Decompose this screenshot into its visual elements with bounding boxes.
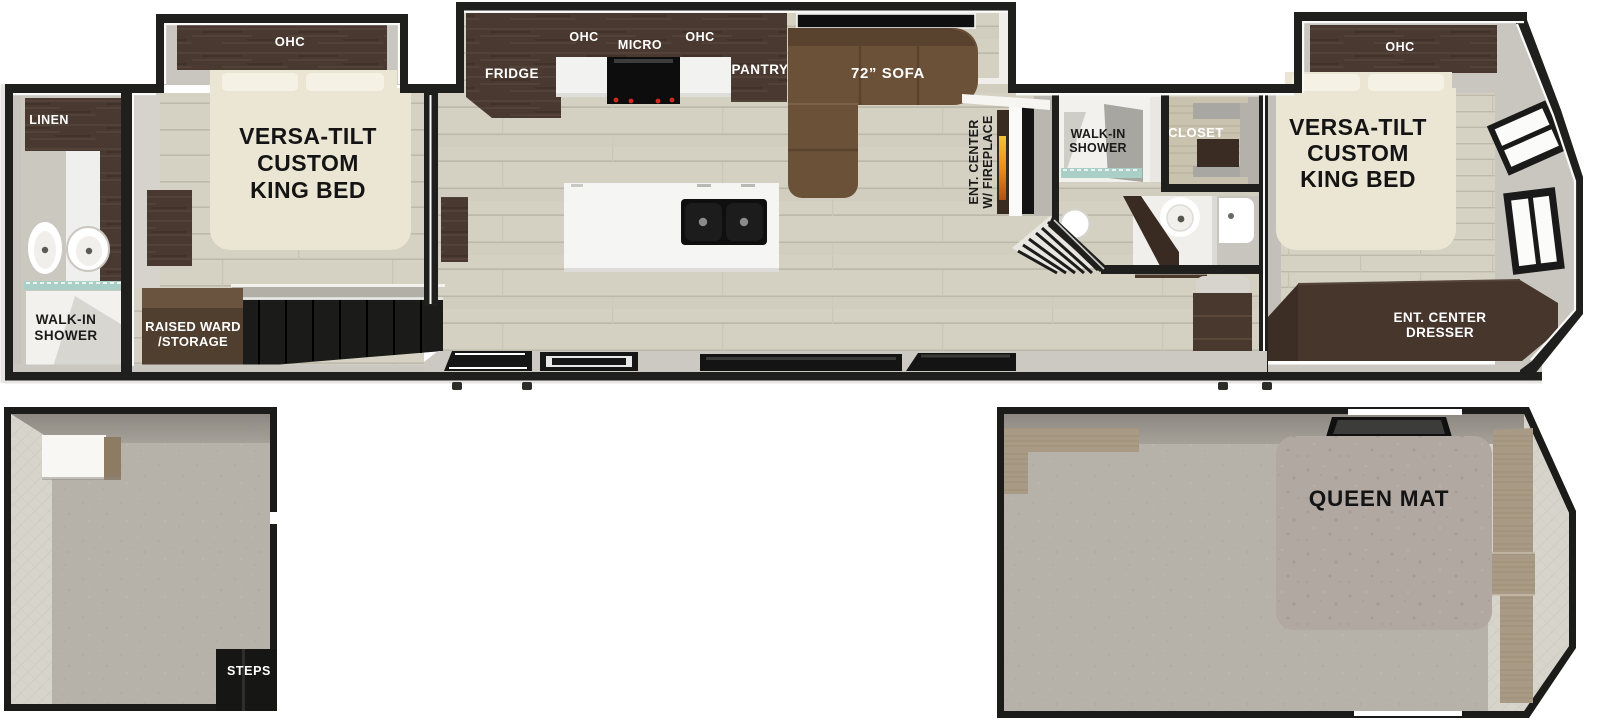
svg-text:LINEN: LINEN bbox=[29, 113, 69, 127]
svg-text:/STORAGE: /STORAGE bbox=[158, 334, 228, 349]
svg-text:WALK-IN: WALK-IN bbox=[1071, 127, 1126, 141]
svg-text:MICRO: MICRO bbox=[618, 38, 662, 52]
svg-text:CLOSET: CLOSET bbox=[1168, 125, 1224, 140]
svg-text:DRESSER: DRESSER bbox=[1406, 325, 1474, 340]
svg-text:PANTRY: PANTRY bbox=[732, 62, 789, 77]
svg-text:SHOWER: SHOWER bbox=[1069, 141, 1126, 155]
svg-text:CUSTOM: CUSTOM bbox=[1307, 140, 1409, 166]
svg-text:FRIDGE: FRIDGE bbox=[485, 66, 539, 81]
svg-text:W/ FIREPLACE: W/ FIREPLACE bbox=[981, 115, 995, 208]
svg-text:ENT. CENTER: ENT. CENTER bbox=[967, 119, 981, 204]
svg-text:VERSA-TILT: VERSA-TILT bbox=[1289, 114, 1427, 140]
svg-text:OHC: OHC bbox=[275, 34, 306, 49]
svg-text:KING BED: KING BED bbox=[250, 177, 366, 203]
svg-text:72” SOFA: 72” SOFA bbox=[851, 65, 925, 82]
svg-text:CUSTOM: CUSTOM bbox=[257, 150, 359, 176]
svg-text:RAISED WARD: RAISED WARD bbox=[145, 319, 241, 334]
svg-text:QUEEN MAT: QUEEN MAT bbox=[1309, 486, 1450, 511]
svg-text:VERSA-TILT: VERSA-TILT bbox=[239, 123, 377, 149]
svg-text:SHOWER: SHOWER bbox=[34, 328, 97, 343]
svg-text:WALK-IN: WALK-IN bbox=[36, 312, 97, 327]
svg-text:OHC: OHC bbox=[1385, 40, 1414, 54]
svg-text:OHC: OHC bbox=[685, 30, 714, 44]
svg-text:ENT. CENTER: ENT. CENTER bbox=[1394, 310, 1487, 325]
svg-text:KING BED: KING BED bbox=[1300, 166, 1416, 192]
svg-text:OHC: OHC bbox=[569, 30, 598, 44]
svg-text:STEPS: STEPS bbox=[227, 664, 271, 678]
